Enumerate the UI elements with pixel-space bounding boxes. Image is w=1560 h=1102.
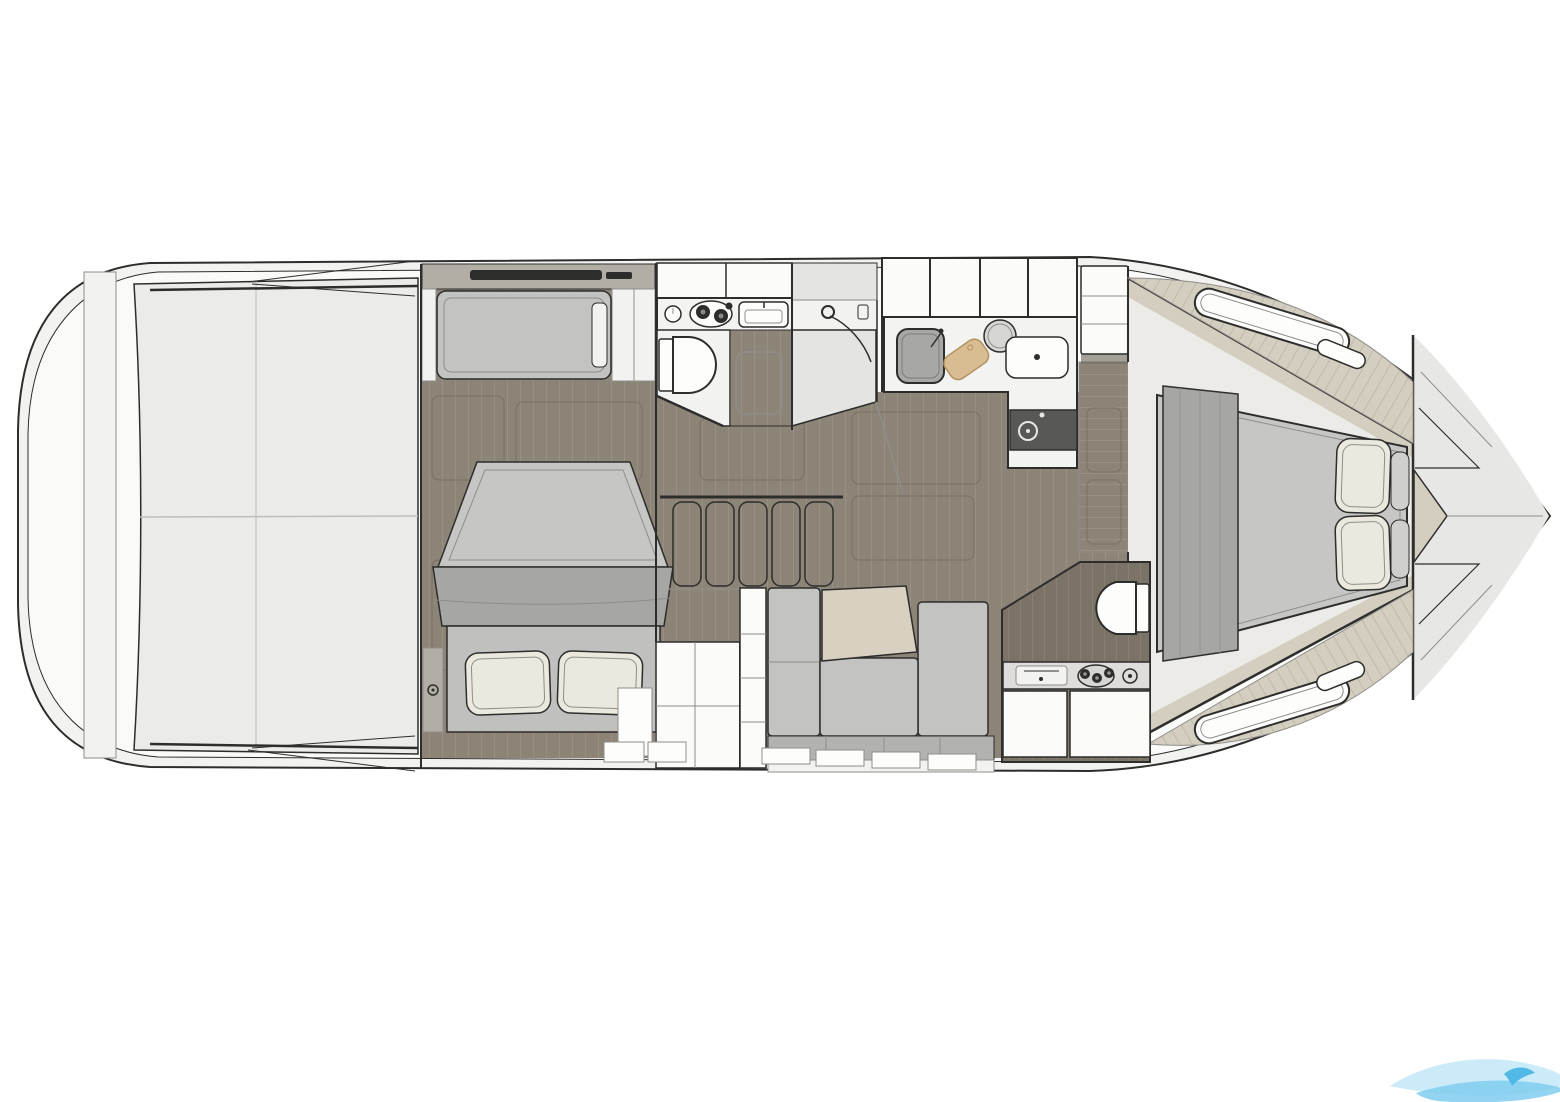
berth-armrest	[592, 303, 607, 367]
drawer-knob	[1039, 677, 1043, 681]
pillow-back	[1391, 520, 1409, 578]
bedside-lamp-icon	[432, 689, 435, 692]
pillow-back	[1391, 452, 1409, 510]
forward-entry	[1079, 266, 1128, 552]
gauge-dial-center	[1128, 674, 1132, 678]
stove-burner-small	[726, 303, 733, 310]
toilet-tank	[1136, 584, 1149, 632]
locker-door	[872, 752, 920, 768]
floor-plan-canvas: Motor yacht interior deck plan	[0, 0, 1560, 1102]
stair-step	[739, 502, 767, 586]
locker-door	[928, 754, 976, 770]
locker-door	[604, 742, 644, 762]
tap-knob-ring	[1083, 672, 1087, 676]
yacht-floor-plan: Motor yacht interior deck plan	[0, 0, 1560, 1102]
swim-platform-strip	[84, 272, 116, 758]
cockpit-mid-seam	[140, 516, 418, 517]
locker-door	[648, 742, 686, 762]
cooktop-knob	[1040, 413, 1045, 418]
stair-step	[706, 502, 734, 586]
stair-step	[805, 502, 833, 586]
locker-door	[762, 748, 810, 764]
stair-step	[772, 502, 800, 586]
stove-burner-ring	[701, 310, 706, 315]
tall-cabinet	[1081, 266, 1128, 354]
dinette-table	[822, 586, 917, 661]
wet-locker-panel	[792, 263, 877, 300]
galley-aft	[657, 263, 792, 332]
sink-faucet	[939, 329, 944, 334]
galley-upper-cabinets	[657, 263, 792, 298]
salon-dinette	[740, 586, 994, 772]
locker-door	[816, 750, 864, 766]
vanity-cabinet	[1070, 691, 1150, 757]
bed-mattress	[438, 462, 668, 567]
berth-side-panel	[422, 289, 436, 381]
toilet-tank	[659, 339, 673, 391]
sofa-cushion-mid	[820, 658, 918, 736]
tap-knob-ring	[1107, 671, 1111, 675]
pillow	[465, 651, 551, 716]
watermark-wave-logo	[1390, 1059, 1560, 1102]
shelf-items	[606, 272, 632, 279]
stair-step	[673, 502, 701, 586]
bed-blanket	[433, 567, 673, 626]
vanity-cabinet	[1003, 691, 1067, 757]
basin-drain	[1034, 354, 1040, 360]
toilet-icon	[1096, 582, 1136, 634]
aft-side-berth	[437, 291, 611, 379]
stove-burner-ring	[719, 314, 724, 319]
shelf-items	[470, 270, 602, 280]
companionway-stairs	[660, 497, 843, 589]
sofa-cushion-right	[918, 602, 988, 736]
cooktop-center	[1026, 429, 1030, 433]
vanity-drawer	[1016, 666, 1067, 685]
tap-knob-ring	[1095, 676, 1099, 680]
